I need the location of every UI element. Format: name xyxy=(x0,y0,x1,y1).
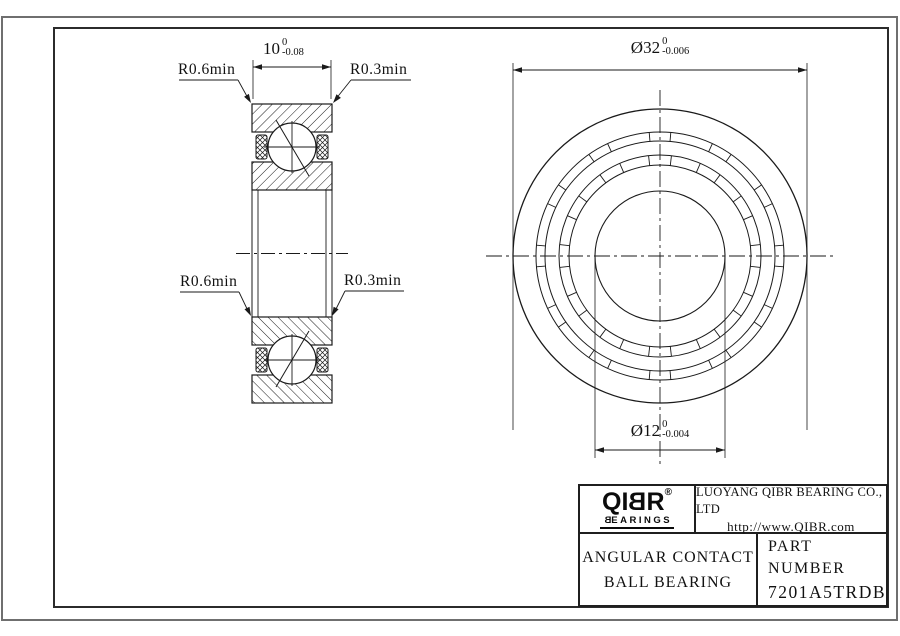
registered-trademark-icon: ® xyxy=(665,488,672,498)
company-info: LUOYANG QIBR BEARING CO., LTD http://www… xyxy=(696,486,886,532)
brand-logo-wordmark: QIBR® xyxy=(602,490,672,514)
product-line-2: BALL BEARING xyxy=(604,570,732,595)
od-dimension-text: Ø32 0 -0.006 xyxy=(612,38,708,57)
product-description: ANGULAR CONTACT BALL BEARING xyxy=(580,534,758,605)
product-line-1: ANGULAR CONTACT xyxy=(582,545,754,570)
company-name: LUOYANG QIBR BEARING CO., LTD xyxy=(696,484,886,518)
title-block-header-row: QIBR® BEARINGS LUOYANG QIBR BEARING CO.,… xyxy=(580,486,886,534)
radius-label-top-right: R0.3min xyxy=(350,61,407,79)
cross-section-view xyxy=(236,104,348,403)
brand-logo: QIBR® BEARINGS xyxy=(580,486,696,532)
title-block-detail-row: ANGULAR CONTACT BALL BEARING PART NUMBER… xyxy=(580,534,886,605)
bore-dimension-text: Ø12 0 -0.004 xyxy=(616,421,704,440)
radius-label-top-left: R0.6min xyxy=(178,61,235,79)
title-block: QIBR® BEARINGS LUOYANG QIBR BEARING CO.,… xyxy=(578,484,888,607)
radius-label-mid-right: R0.3min xyxy=(344,272,401,290)
radius-label-mid-left: R0.6min xyxy=(180,273,237,291)
company-website: http://www.QIBR.com xyxy=(727,518,855,535)
front-view xyxy=(486,90,834,464)
part-number-cell: PART NUMBER 7201A5TRDB xyxy=(758,534,886,605)
part-number-label: PART NUMBER xyxy=(768,536,886,580)
drawing-sheet: 10 0 -0.08 R0.6min R0.3min R0.6min R0.3m… xyxy=(0,0,900,636)
part-number-value: 7201A5TRDB xyxy=(768,580,886,604)
width-dimension xyxy=(253,60,331,99)
brand-logo-subtitle: BEARINGS xyxy=(600,515,674,529)
width-dimension-text: 10 0 -0.08 xyxy=(263,39,304,58)
